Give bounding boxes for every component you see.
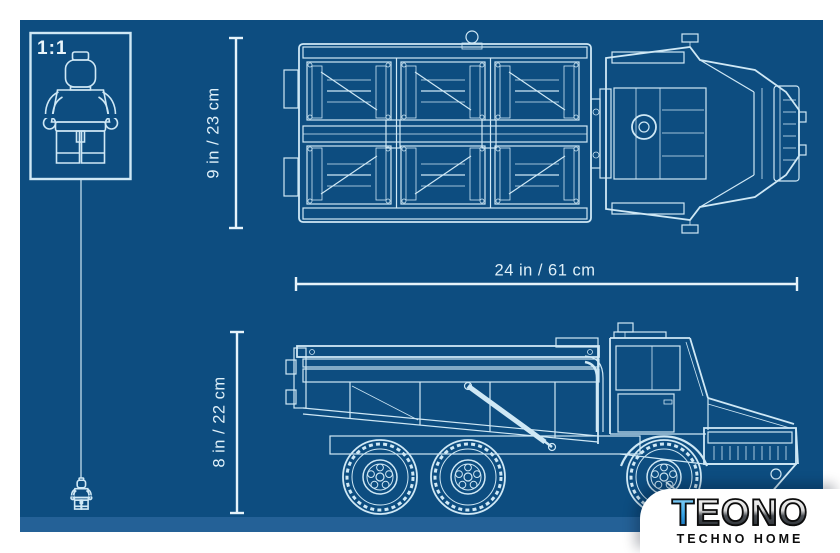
- dimension-label-side-height: 8 in / 22 cm: [211, 376, 230, 467]
- brand-logo: TEONO: [672, 496, 809, 530]
- top-view-drawing: [284, 31, 806, 233]
- side-view-drawing: [286, 323, 798, 514]
- dimension-line-top-vertical: [229, 38, 243, 228]
- brand-logo-first-letter: T: [672, 492, 696, 533]
- brand-subtitle: TECHNO HOME: [677, 532, 804, 546]
- dimension-label-top-height: 9 in / 23 cm: [205, 87, 224, 178]
- dimension-label-length: 24 in / 61 cm: [495, 262, 596, 281]
- scale-figure-large: [44, 52, 118, 163]
- scale-ratio-label: 1:1: [37, 38, 67, 60]
- scale-figure-small: [71, 478, 92, 509]
- dimension-line-side-vertical: [230, 332, 244, 513]
- blueprint-drawing: [0, 0, 840, 553]
- brand-logo-rest: EONO: [695, 492, 808, 533]
- watermark-panel: TEONO TECHNO HOME: [640, 489, 840, 553]
